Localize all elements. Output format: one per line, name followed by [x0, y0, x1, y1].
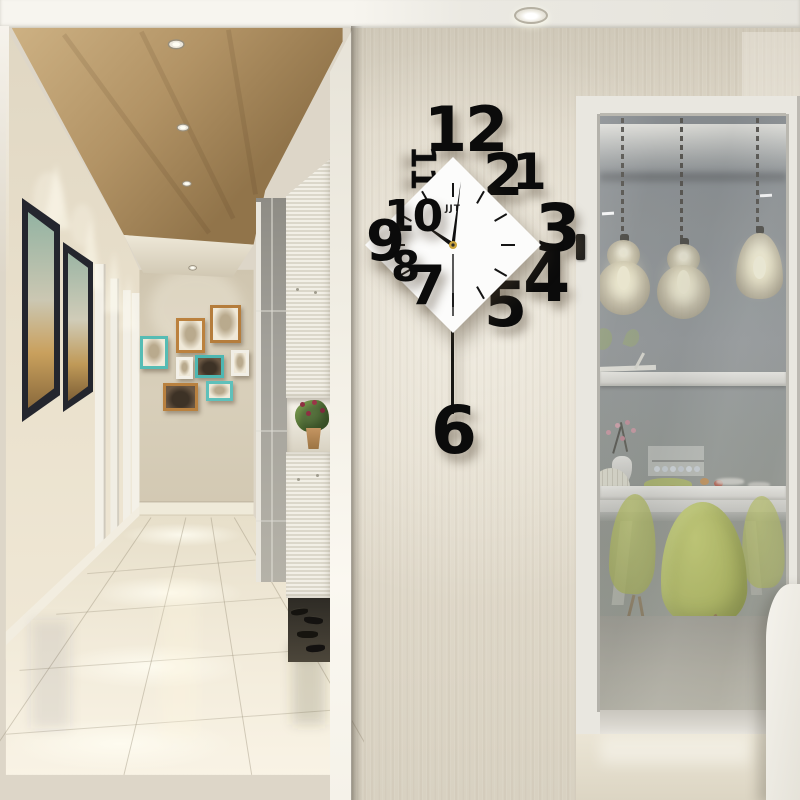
glass-view [600, 116, 786, 710]
cabinet-knob-2 [314, 291, 317, 294]
gallery-frame-teal-3 [206, 381, 233, 401]
cabinet-knob-4 [316, 474, 319, 477]
hall-door-muntin-h2 [256, 430, 290, 432]
baseboard-end [139, 502, 253, 515]
cabinet-niche [287, 398, 335, 452]
hall-glass-door [256, 198, 290, 582]
cabinet-lower-doors [286, 452, 336, 598]
shoe [291, 607, 309, 616]
gallery-frame-orange-2 [210, 305, 241, 343]
corner-pillar [330, 26, 352, 800]
clock-numeral-7: 7 [408, 262, 444, 310]
frame-bottom [600, 710, 786, 734]
shoe [304, 615, 324, 625]
framed-art-1 [22, 198, 60, 422]
plant-flowers [300, 402, 305, 407]
framed-art-2 [63, 242, 93, 412]
shoe [297, 630, 318, 638]
cabinet-knob-1 [296, 288, 299, 291]
cabinet-knob-3 [297, 478, 300, 481]
white-chair-foreground [766, 584, 800, 800]
wall-panel-above-door [742, 32, 800, 98]
gallery-frame-teal-2 [195, 355, 224, 378]
ceiling-downlight-icon [514, 7, 548, 24]
front-ceiling [0, 0, 800, 28]
hall-door-casing [256, 202, 261, 582]
hall-door-muntin-h3 [256, 520, 290, 522]
framed-art-1-print [28, 212, 54, 408]
wall-seam-shadow [351, 26, 363, 800]
gallery-frame-orange-1 [176, 318, 205, 353]
gallery-frame-white-1 [176, 357, 193, 379]
gallery-frame-orange-3 [163, 383, 198, 411]
hall-door-muntin-v [271, 198, 273, 582]
shoe-recess [288, 598, 334, 662]
gallery-frame-white-2 [231, 350, 249, 376]
glass-sheen [600, 116, 786, 710]
gallery-frame-teal-1 [140, 336, 168, 369]
glass-reflection-dash [760, 194, 772, 198]
floor-right-reflection [600, 736, 750, 764]
clock-numeral-6: 6 [431, 402, 475, 460]
framed-art-2-print [68, 253, 88, 401]
hallway-clock-photo: 12 11 2 1 3 4 5 6 JJT 10 9 8 7 [0, 0, 800, 800]
hall-door-muntin-h1 [256, 310, 290, 312]
shoe [306, 643, 326, 653]
plant-pot [305, 428, 322, 449]
left-corner-strip [0, 26, 9, 276]
